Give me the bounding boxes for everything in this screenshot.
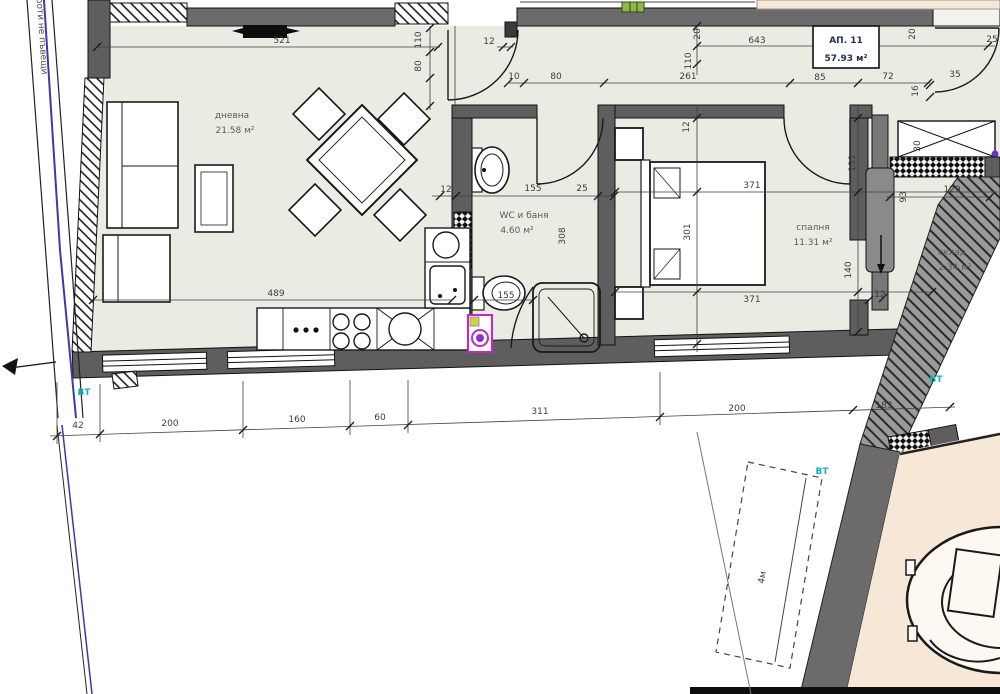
bedroom-top-wall [603,105,784,118]
dim-20-b: 20 [908,28,918,40]
dim-60: 60 [374,413,386,423]
washer-drum [476,334,484,342]
boundary-arrow [2,358,18,375]
dim-643: 643 [748,36,765,46]
dim-155-top: 155 [524,184,541,194]
window-bedroom [654,336,789,357]
upper-unit-strip [757,0,1000,9]
vt-marker-right: ВТ [930,375,944,385]
dim-371-top: 371 [743,181,760,191]
bedroom-right-wall-upper [850,118,868,240]
cabinet-knobs [293,327,318,332]
dim-42: 42 [72,421,83,431]
room-storage-name: склад [938,248,966,258]
bedroom-right-wall-lower [850,300,868,335]
coffee-table [195,165,233,232]
dim-301: 301 [683,223,693,240]
room-bath-name: WC и баня [499,211,548,221]
nightstand-top [615,128,643,160]
apartment-number: АП. 11 [829,36,863,46]
dim-155-bottom: 155 [497,291,514,301]
dim-12-bedroom: 12 [682,121,692,132]
wash-basin [472,147,509,193]
dim-200-a: 200 [161,419,178,429]
neighbor-door-opening [933,8,1000,26]
dim-160: 160 [288,415,305,425]
dashed-setback [716,462,822,668]
boundary-note: до коелботи не пъвещи [31,0,49,75]
vt-marker-terrace: ВТ [816,467,830,477]
corner-hatch [112,371,138,389]
dim-521: 521 [273,36,290,46]
room-bath-area: 4.60 м² [500,226,534,236]
dim-12-storage: 12 [874,290,885,300]
dim-200-b: 200 [728,404,745,414]
offset-4m: 4м [757,571,769,585]
sofa [103,102,178,302]
corridor-wall-band [517,8,933,26]
room-living-name: дневна [215,111,249,121]
room-living-area: 21.58 м² [215,126,254,136]
dim-308: 308 [558,227,568,244]
dim-12-bath: 12 [440,185,451,195]
dim-131: 131 [848,154,858,171]
insulation-hatch-top-left [110,3,187,22]
dim-20-a: 20 [693,28,703,40]
dim-35: 35 [949,70,960,80]
room-bedroom-area: 11.31 м² [793,238,832,248]
purple-dot [992,151,999,158]
window-living-2 [227,349,334,369]
insulation-hatch-entry [395,3,448,24]
dim-10: 10 [508,72,520,82]
floor-plan-drawing: 5211108012108026185726432011020253516301… [0,0,1000,694]
washing-machine [468,315,492,352]
dim-261: 261 [679,72,696,82]
dim-183: 183 [875,401,892,411]
green-checker-marker [622,2,644,12]
dim-93: 93 [899,191,909,202]
dim-25-bath: 25 [576,184,587,194]
room-bedroom-name: спалня [796,223,829,233]
dim-311: 311 [531,407,548,417]
storage-top-wall-hatch [890,157,985,177]
dim-110-entry: 110 [414,31,424,48]
floor-plan-canvas: 5211108012108026185726432011020253516301… [0,0,1000,694]
dim-489: 489 [267,289,284,299]
dim-16: 16 [911,85,921,97]
window-living-1 [102,352,206,372]
dim-110-b: 110 [684,52,694,69]
kitchen-column [425,228,470,308]
dim-85: 85 [814,73,825,83]
dim-80: 80 [550,72,562,82]
room-storage-area: 2.34 м² [938,263,972,273]
washer-detergent [470,317,479,326]
dim-371-bottom: 371 [743,295,760,305]
dim-30: 30 [913,140,923,152]
dim-140: 140 [844,261,854,278]
vt-marker-left: ВТ [78,388,92,398]
headboard [641,160,650,287]
bottom-border [690,687,1000,694]
dim-12-entry: 12 [483,37,494,47]
duct-column-bulge [866,168,894,272]
bath-top-wall-left [452,105,537,118]
dim-25: 25 [986,35,997,45]
dim-80-entry: 80 [414,60,424,72]
dim-129: 129 [943,185,960,195]
setback-lines [697,432,822,694]
apartment-area: 57.93 м² [825,54,868,64]
dim-72: 72 [882,72,893,82]
